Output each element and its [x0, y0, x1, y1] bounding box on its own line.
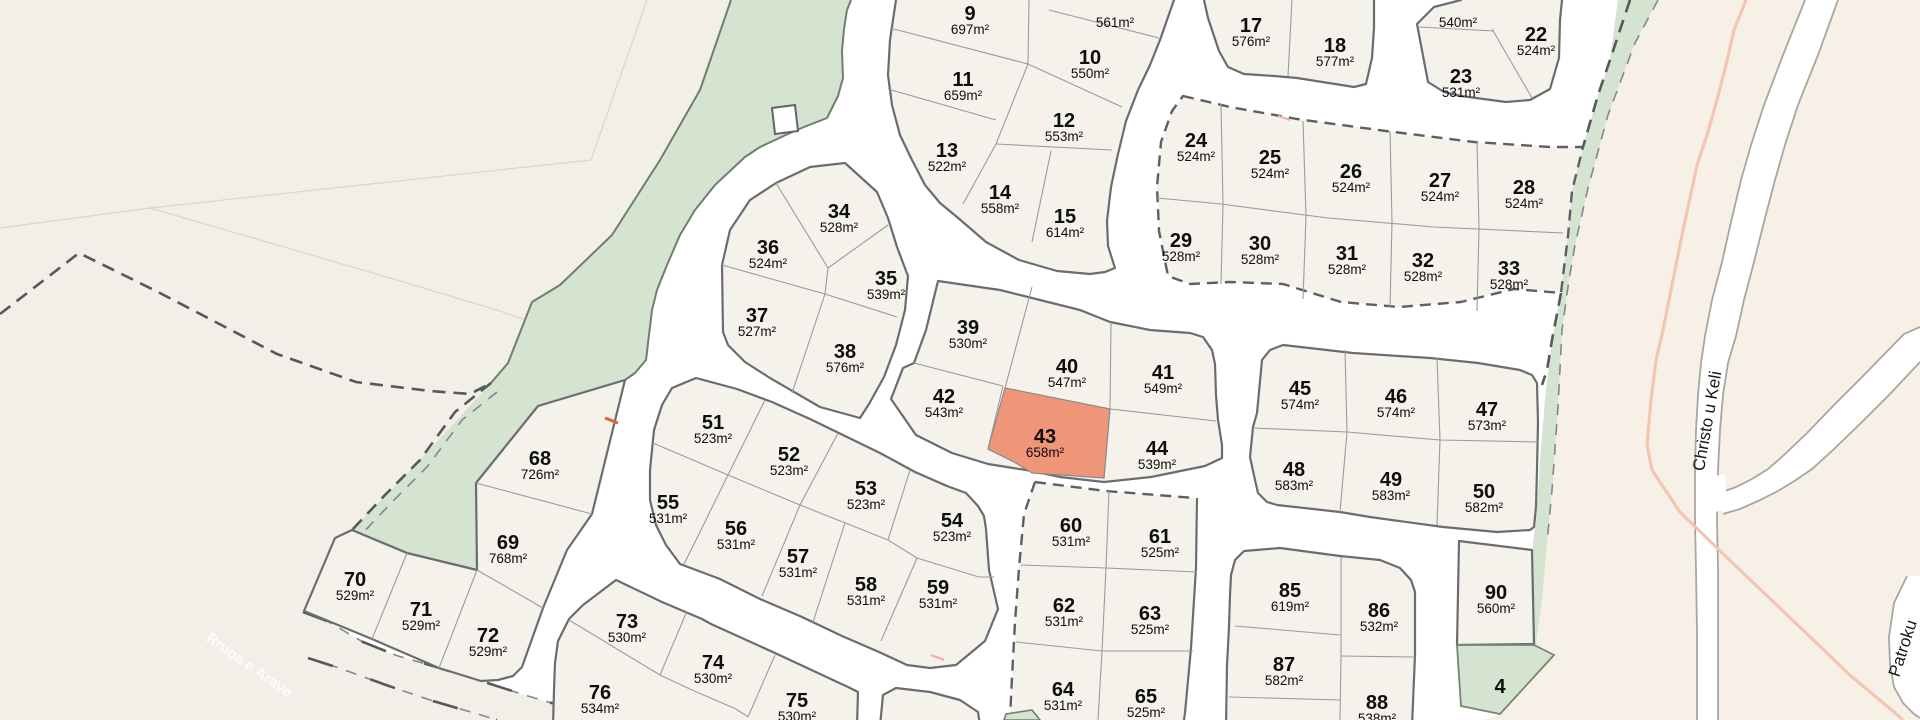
svg-text:523m²: 523m²: [933, 529, 972, 544]
svg-text:529m²: 529m²: [469, 644, 508, 659]
svg-text:530m²: 530m²: [608, 630, 647, 645]
svg-text:658m²: 658m²: [1026, 445, 1065, 460]
svg-text:539m²: 539m²: [1138, 457, 1177, 472]
svg-text:528m²: 528m²: [1328, 262, 1367, 277]
svg-text:528m²: 528m²: [1241, 252, 1280, 267]
svg-text:531m²: 531m²: [649, 511, 688, 526]
svg-text:543m²: 543m²: [925, 405, 964, 420]
svg-text:531m²: 531m²: [1442, 85, 1481, 100]
svg-text:529m²: 529m²: [336, 588, 375, 603]
svg-text:553m²: 553m²: [1045, 129, 1084, 144]
svg-text:573m²: 573m²: [1468, 418, 1507, 433]
svg-text:574m²: 574m²: [1281, 397, 1320, 412]
svg-text:539m²: 539m²: [867, 287, 906, 302]
svg-text:524m²: 524m²: [1517, 43, 1556, 58]
svg-text:583m²: 583m²: [1372, 488, 1411, 503]
svg-text:4: 4: [1494, 676, 1506, 698]
svg-text:523m²: 523m²: [694, 431, 733, 446]
svg-text:531m²: 531m²: [1045, 614, 1084, 629]
svg-text:530m²: 530m²: [694, 671, 733, 686]
svg-text:540m²: 540m²: [1439, 15, 1478, 30]
svg-text:538m²: 538m²: [1358, 711, 1397, 720]
svg-text:531m²: 531m²: [919, 596, 958, 611]
svg-text:659m²: 659m²: [944, 88, 983, 103]
svg-text:527m²: 527m²: [738, 324, 777, 339]
svg-text:582m²: 582m²: [1265, 673, 1304, 688]
svg-text:547m²: 547m²: [1048, 375, 1087, 390]
svg-text:529m²: 529m²: [402, 618, 441, 633]
svg-text:697m²: 697m²: [951, 22, 990, 37]
svg-text:577m²: 577m²: [1316, 54, 1355, 69]
svg-text:524m²: 524m²: [1421, 189, 1460, 204]
svg-text:619m²: 619m²: [1271, 599, 1310, 614]
svg-text:525m²: 525m²: [1131, 622, 1170, 637]
svg-text:524m²: 524m²: [1332, 180, 1371, 195]
svg-text:561m²: 561m²: [1096, 15, 1135, 30]
svg-text:614m²: 614m²: [1046, 225, 1085, 240]
svg-text:524m²: 524m²: [1177, 149, 1216, 164]
svg-text:524m²: 524m²: [1505, 196, 1544, 211]
svg-text:583m²: 583m²: [1275, 478, 1314, 493]
svg-text:576m²: 576m²: [826, 360, 865, 375]
svg-text:558m²: 558m²: [981, 201, 1020, 216]
svg-text:528m²: 528m²: [1404, 269, 1443, 284]
svg-text:576m²: 576m²: [1232, 34, 1271, 49]
svg-text:560m²: 560m²: [1477, 601, 1516, 616]
svg-text:726m²: 726m²: [521, 467, 560, 482]
svg-text:531m²: 531m²: [717, 537, 756, 552]
svg-text:549m²: 549m²: [1144, 381, 1183, 396]
svg-text:522m²: 522m²: [928, 159, 967, 174]
svg-text:531m²: 531m²: [779, 565, 818, 580]
svg-text:530m²: 530m²: [949, 336, 988, 351]
svg-text:574m²: 574m²: [1377, 405, 1416, 420]
svg-text:523m²: 523m²: [847, 497, 886, 512]
svg-text:534m²: 534m²: [581, 701, 620, 716]
svg-text:530m²: 530m²: [778, 709, 817, 720]
svg-text:582m²: 582m²: [1465, 500, 1504, 515]
svg-text:524m²: 524m²: [1251, 166, 1290, 181]
svg-text:525m²: 525m²: [1141, 545, 1180, 560]
svg-text:525m²: 525m²: [1127, 705, 1166, 720]
svg-text:768m²: 768m²: [489, 551, 528, 566]
svg-text:528m²: 528m²: [1162, 249, 1201, 264]
svg-text:531m²: 531m²: [1044, 698, 1083, 713]
svg-text:532m²: 532m²: [1360, 619, 1399, 634]
svg-text:531m²: 531m²: [847, 593, 886, 608]
svg-text:524m²: 524m²: [749, 256, 788, 271]
svg-text:531m²: 531m²: [1052, 534, 1091, 549]
svg-text:528m²: 528m²: [820, 220, 859, 235]
svg-text:528m²: 528m²: [1490, 277, 1529, 292]
svg-text:523m²: 523m²: [770, 463, 809, 478]
svg-text:550m²: 550m²: [1071, 66, 1110, 81]
